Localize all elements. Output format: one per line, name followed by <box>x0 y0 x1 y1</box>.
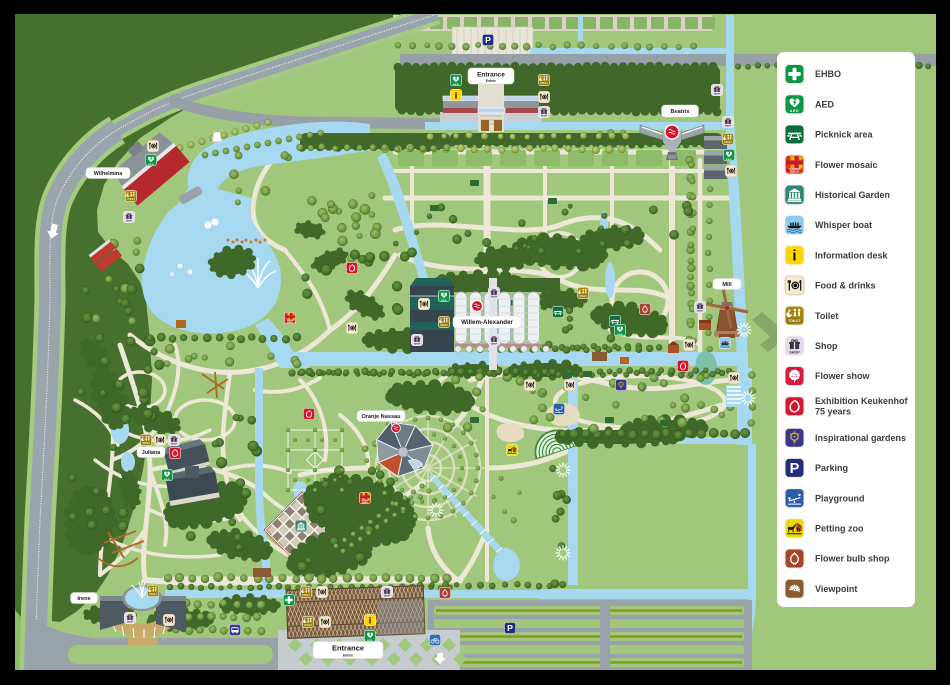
svg-text:Picknick area: Picknick area <box>815 130 874 140</box>
svg-text:Entree: Entree <box>486 79 496 83</box>
svg-text:Oranje Nassau: Oranje Nassau <box>361 414 401 420</box>
svg-text:Flower show: Flower show <box>815 371 871 381</box>
svg-text:AED: AED <box>815 99 835 109</box>
svg-text:Irene: Irene <box>77 596 90 602</box>
svg-text:Whisper boat: Whisper boat <box>815 220 872 230</box>
svg-text:Food & drinks: Food & drinks <box>815 281 876 291</box>
svg-text:Willem-Alexander: Willem-Alexander <box>461 319 513 326</box>
svg-text:Historical Garden: Historical Garden <box>815 190 890 200</box>
svg-text:Playground: Playground <box>815 493 865 503</box>
svg-text:Parking: Parking <box>815 463 848 473</box>
svg-text:Shop: Shop <box>815 341 838 351</box>
svg-text:Entrance: Entrance <box>477 72 505 79</box>
svg-text:EHBO: EHBO <box>815 69 841 79</box>
svg-text:Flower bulb shop: Flower bulb shop <box>815 554 890 564</box>
svg-text:Entree: Entree <box>343 654 353 658</box>
svg-text:Exhibition Keukenhof: Exhibition Keukenhof <box>815 396 909 406</box>
svg-text:Viewpoint: Viewpoint <box>815 584 857 594</box>
svg-text:Mill: Mill <box>722 282 732 288</box>
svg-text:Petting zoo: Petting zoo <box>815 524 864 534</box>
svg-text:Inspirational gardens: Inspirational gardens <box>815 433 906 443</box>
svg-text:Wilhelmina: Wilhelmina <box>94 171 123 177</box>
svg-text:Flower mosaic: Flower mosaic <box>815 160 878 170</box>
svg-text:Toilet: Toilet <box>815 311 838 321</box>
svg-text:Information desk: Information desk <box>815 250 889 260</box>
svg-text:Entrance: Entrance <box>332 644 364 653</box>
svg-text:Beatrix: Beatrix <box>671 109 691 115</box>
svg-text:Juliana: Juliana <box>142 450 162 456</box>
svg-text:75 years: 75 years <box>815 407 851 417</box>
